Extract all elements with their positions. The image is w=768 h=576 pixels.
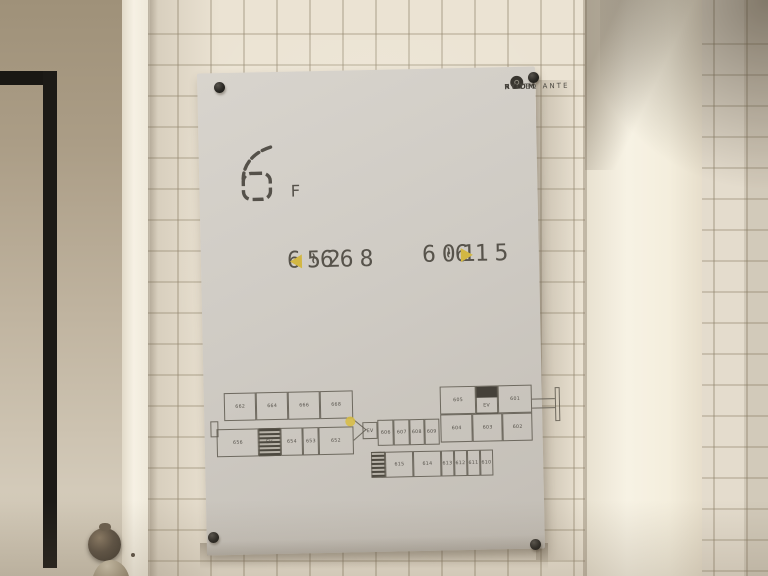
door-frame-side-bar bbox=[43, 71, 57, 568]
plan-stairs bbox=[371, 452, 386, 478]
photo-hotel-floor-sign: HOTEL ANTEROOM KYOTO F 652 ~ 668 601 ~ 6… bbox=[0, 0, 768, 576]
arrow-left-icon bbox=[290, 254, 302, 268]
plan-corridor-end bbox=[555, 387, 561, 421]
plan-room: 610 bbox=[480, 449, 494, 475]
plan-room: 656 bbox=[216, 428, 259, 457]
range-right-end: 615 bbox=[449, 240, 515, 268]
plan-room: 666 bbox=[288, 391, 321, 420]
floor-number-six-glyph bbox=[234, 144, 283, 203]
plan-room: 611 bbox=[467, 450, 481, 476]
plan-room: 653 bbox=[302, 427, 319, 455]
plan-room: 603 bbox=[472, 413, 503, 442]
push-pin-bottom-right bbox=[530, 539, 541, 550]
plan-room: 604 bbox=[440, 414, 473, 443]
plan-room: 609 bbox=[424, 419, 440, 445]
door bbox=[0, 0, 122, 576]
plan-elevator-shaft: EV bbox=[476, 385, 499, 413]
floor-sign-poster: HOTEL ANTEROOM KYOTO F 652 ~ 668 601 ~ 6… bbox=[197, 67, 545, 556]
room-range-right-wing: 601 ~ 615 bbox=[393, 240, 505, 242]
plan-room: 614 bbox=[413, 451, 442, 478]
current-location-dot bbox=[345, 416, 355, 426]
plan-room: 662 bbox=[224, 392, 257, 421]
push-pin-top-right bbox=[528, 72, 539, 83]
floor-indicator: F bbox=[234, 143, 300, 202]
floor-plan: 662 664 666 668 656 EV 654 653 652 EV 60… bbox=[210, 382, 544, 487]
arrow-right-icon bbox=[461, 248, 473, 262]
plan-room: 615 bbox=[385, 451, 414, 478]
tiled-wall-right bbox=[702, 0, 768, 576]
plan-room: 652 bbox=[318, 426, 354, 455]
door-jamb bbox=[122, 0, 148, 576]
plan-room: 607 bbox=[393, 419, 410, 445]
room-range-left-wing: 652 ~ 668 bbox=[258, 246, 370, 248]
plan-room: 664 bbox=[256, 392, 289, 421]
push-pin-bottom-left bbox=[208, 532, 219, 543]
plan-room: 613 bbox=[441, 450, 455, 476]
door-lock-cylinder bbox=[88, 528, 121, 561]
smooth-wall-panel bbox=[585, 0, 705, 576]
plan-room: 602 bbox=[502, 413, 533, 442]
plan-room: 608 bbox=[409, 419, 425, 445]
logo-part3: KYOTO bbox=[504, 82, 538, 91]
plan-room: 601 bbox=[498, 385, 533, 414]
range-left-end: 668 bbox=[314, 246, 380, 274]
plan-room: 654 bbox=[280, 427, 303, 455]
plan-room: 612 bbox=[454, 450, 468, 476]
push-pin-top-left bbox=[214, 82, 225, 93]
plan-room: 668 bbox=[320, 390, 354, 419]
wall-corner-edge bbox=[583, 0, 587, 576]
hotel-logo: HOTEL ANTEROOM KYOTO bbox=[504, 76, 523, 89]
floor-suffix: F bbox=[290, 183, 300, 201]
screw bbox=[131, 553, 135, 557]
plan-room: 605 bbox=[440, 386, 477, 415]
plan-elevator: EV bbox=[362, 422, 377, 439]
plan-corridor-stub bbox=[532, 398, 555, 408]
plan-room: 606 bbox=[377, 420, 394, 446]
plan-elevator-shaft: EV bbox=[258, 428, 281, 456]
